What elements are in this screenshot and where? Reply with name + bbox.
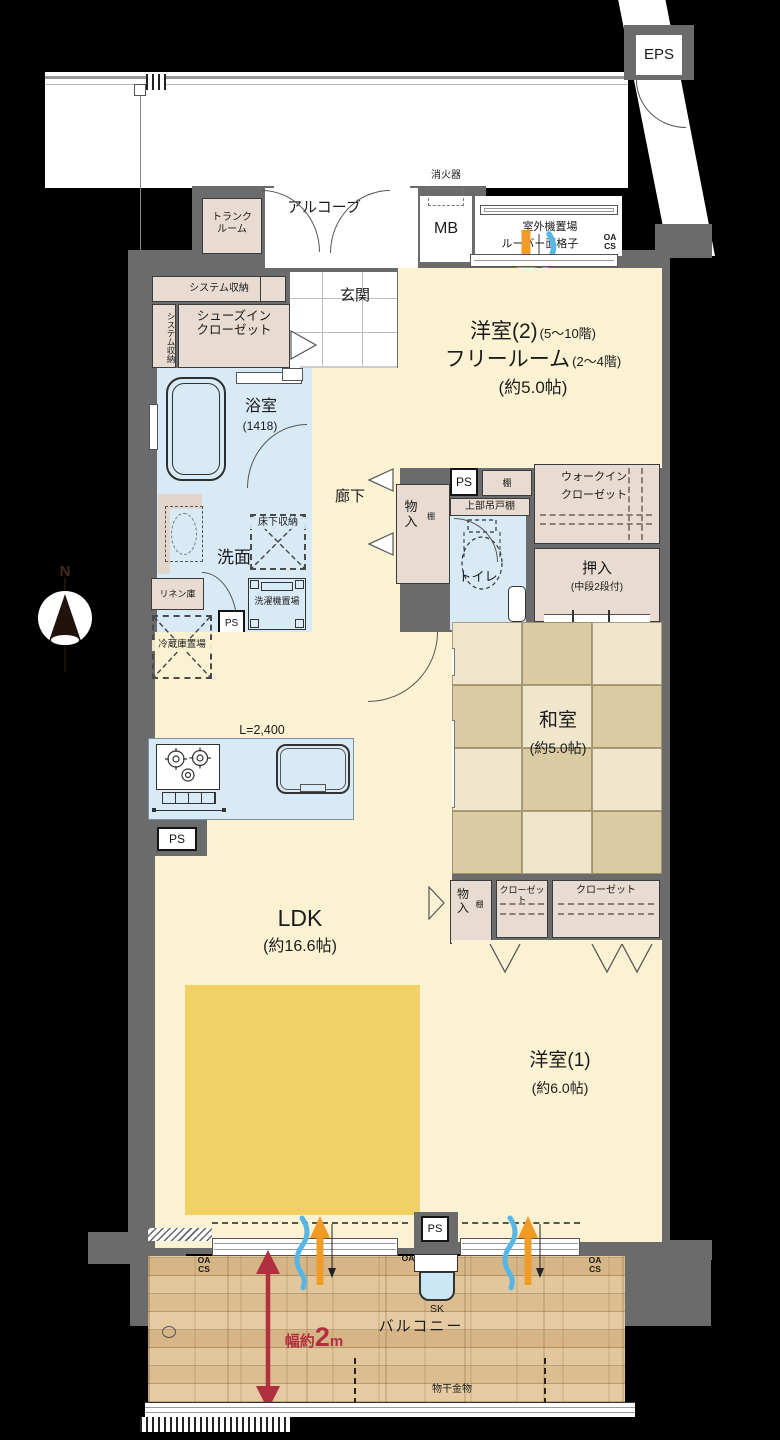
dimension-line (154, 810, 224, 811)
washer-top-bar (261, 582, 293, 591)
system-storage-side: システム収納 (152, 304, 176, 368)
bathtub-inner (172, 383, 220, 475)
ldk-rug (185, 985, 420, 1215)
rail-line (145, 1412, 635, 1413)
ps-box-kitchen: PS (157, 827, 197, 851)
system-storage-label: システム収納 (189, 283, 249, 295)
tatami-cell (522, 748, 592, 811)
closet-dash (500, 913, 544, 915)
floor-plan-canvas: { "exterior": { "eps": "EPS", "trunk_roo… (0, 0, 780, 1440)
trunk-room-label: トランク ルーム (203, 212, 261, 235)
washer-corner (250, 580, 259, 589)
ps-label: PS (456, 475, 472, 489)
bath-shelf-box (282, 368, 303, 381)
western-room-2-floors-high: (5〜10階) (540, 327, 596, 342)
v-door-icon (488, 942, 522, 974)
toilet-label: トイレ (452, 570, 504, 585)
wic-label-1: ウォークイン (538, 471, 650, 484)
tatami-cell (522, 622, 592, 685)
tatami-cell (592, 622, 662, 685)
louver-bar-inner (484, 208, 614, 212)
wic-hanger-dash (540, 514, 652, 516)
free-room-name: フリールーム (445, 348, 570, 372)
rail-line (145, 1407, 635, 1408)
north-label: N (60, 563, 71, 580)
dimension-end (222, 808, 226, 812)
washer-space-label: 洗濯機置場 (249, 596, 305, 606)
v-door-icon (590, 942, 654, 974)
oshiire-note: (中段2段付) (544, 582, 650, 594)
tatami-cell (452, 748, 522, 811)
oshiire-label: 押入 (558, 560, 636, 577)
ps-label: PS (169, 832, 185, 846)
ps-label: PS (428, 1223, 443, 1235)
western-room-2-name: 洋室(2) (470, 320, 538, 344)
north-compass-icon: N (32, 560, 98, 676)
tatami-cell (452, 622, 522, 685)
washer-corner (295, 580, 304, 589)
oa-cs-label: OA CS (598, 233, 622, 251)
system-storage-top: システム収納 (152, 276, 286, 302)
corridor-edge-line (45, 84, 628, 85)
airflow-arrows-icon (500, 1214, 544, 1292)
shoe-closet-line1: シューズイン (197, 309, 271, 323)
partition-dash (544, 1358, 546, 1404)
japanese-room-label: 和室 (522, 710, 594, 732)
window-line (474, 260, 614, 261)
underfloor-storage-label: 床下収納 (250, 517, 306, 529)
stove-grill (162, 792, 216, 804)
balcony-label: バルコニー (360, 1318, 482, 1335)
folding-door-icon (428, 886, 446, 920)
closet-dash (500, 903, 544, 905)
eps-label-box: EPS (636, 35, 682, 75)
corridor-edge-line (45, 76, 628, 79)
corridor-node (134, 84, 146, 96)
width-unit: m (330, 1333, 343, 1350)
linen-storage-label: リネン庫 (159, 589, 195, 599)
upper-cabinet: 上部吊戸棚 (450, 498, 530, 516)
kitchen-length-label: L=2,400 (222, 723, 302, 737)
oa-cs-label: OA CS (583, 1256, 607, 1274)
balcony-rail (145, 1402, 635, 1417)
upper-cabinet-label: 上部吊戸棚 (465, 501, 515, 513)
sk-sink (419, 1271, 455, 1301)
ps-label: PS (225, 618, 238, 629)
bathroom-label: 浴室 (236, 398, 286, 416)
wic-hanger-dash-v (641, 468, 643, 540)
tatami-cell (522, 811, 592, 874)
corridor-hatch-block (146, 74, 166, 90)
kitchen-sink-notch (300, 784, 326, 792)
oa-cs-label: OA CS (192, 1256, 216, 1274)
wic-hanger-dash-v (628, 468, 630, 540)
fire-extinguisher-label: 消火器 (415, 170, 477, 182)
tatami-cell (592, 748, 662, 811)
sk-base (414, 1254, 458, 1272)
sk-label: SK (422, 1303, 452, 1315)
shoe-closet-line2: クローゼット (196, 323, 271, 337)
tatami-cell (452, 811, 522, 874)
western-room-2-title: 洋室(2)(5〜10階) (408, 320, 658, 344)
closet-dash (558, 903, 654, 905)
washer-corner (295, 619, 304, 628)
vanity-basin-bowl (171, 513, 197, 555)
width-value: 2 (315, 1322, 330, 1353)
ldk-storage-label: 物 入 (453, 888, 473, 916)
closet-large-label: クローゼット (562, 885, 650, 897)
louver-hatch-bottom (140, 1417, 290, 1432)
folding-door-icon (368, 468, 394, 492)
toilet-tank (508, 586, 526, 622)
tatami-cell (592, 685, 662, 748)
japanese-room-size: (約5.0帖) (512, 740, 604, 756)
eps-label: EPS (644, 46, 674, 63)
airflow-arrows-icon (292, 1214, 336, 1292)
ps-box-hall: PS (450, 468, 478, 496)
wic-label-2: クローゼット (538, 489, 650, 502)
folding-door-icon (290, 330, 318, 360)
width-prefix: 幅約 (285, 1330, 315, 1351)
common-corridor (45, 72, 628, 188)
western-room-2-floors-low: (2〜4階) (572, 355, 621, 370)
system-storage-side-label: システム収納 (166, 312, 176, 363)
balcony-right-wall (625, 1258, 711, 1326)
hall-shelf-label: 棚 (502, 478, 511, 488)
wic-hanger-dash (540, 523, 652, 525)
fire-extinguisher-box (428, 188, 464, 206)
genkan-label: 玄関 (328, 287, 382, 304)
ps-box-bottom: PS (421, 1216, 449, 1242)
stove-burners-icon (156, 744, 220, 790)
western-room-2-size: (約5.0帖) (460, 378, 606, 398)
oshiire-door-track (544, 614, 650, 622)
system-storage-divider (260, 276, 261, 302)
hall-storage-shelf-label: 棚 (424, 512, 438, 521)
width-dimension-label: 幅約2m (272, 1322, 356, 1353)
western-room-1-label: 洋室(1) (505, 1050, 615, 1072)
bath-window (149, 404, 158, 450)
washer-corner (250, 619, 259, 628)
ldk-label: LDK (250, 905, 350, 931)
shoe-closet-label: シューズインクローゼット (180, 309, 288, 338)
folding-door-icon (368, 532, 394, 556)
louver-hatch-strip (148, 1228, 212, 1241)
closet-dash (558, 913, 654, 915)
genkan-tile-line (322, 272, 323, 368)
dimension-end (152, 808, 156, 812)
hall-storage-label: 物 入 (400, 500, 422, 530)
balcony-drain (162, 1326, 176, 1338)
hall-shelf: 棚 (482, 470, 532, 496)
ldk-size-label: (約16.6帖) (235, 938, 365, 956)
linen-storage: リネン庫 (151, 578, 204, 610)
tatami-cell (452, 685, 522, 748)
western-room-2-subtitle: フリールーム(2〜4階) (404, 348, 662, 372)
fridge-space-label: 冷蔵庫置場 (152, 640, 212, 651)
ldk-storage-shelf-label: 棚 (473, 900, 486, 909)
drying-hardware-label: 物干金物 (418, 1384, 486, 1396)
tatami-cell (592, 811, 662, 874)
partition-dash (354, 1358, 356, 1404)
wall-segment (655, 224, 712, 258)
western-room-1-size: (約6.0帖) (508, 1080, 612, 1096)
mb-label: MB (434, 220, 458, 238)
